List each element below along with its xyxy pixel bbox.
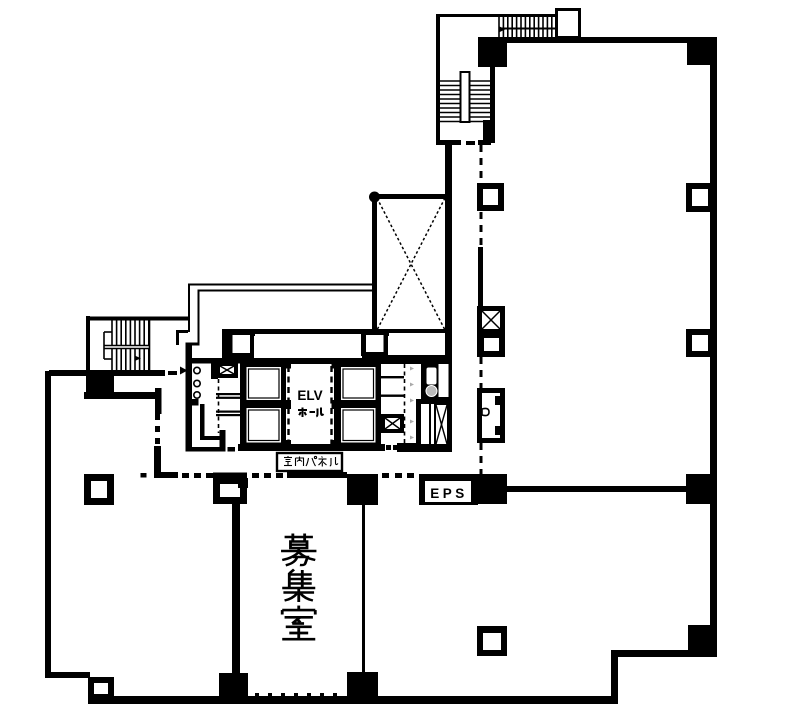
svg-text:ELV: ELV	[297, 388, 322, 403]
svg-text:EPS: EPS	[430, 486, 468, 501]
